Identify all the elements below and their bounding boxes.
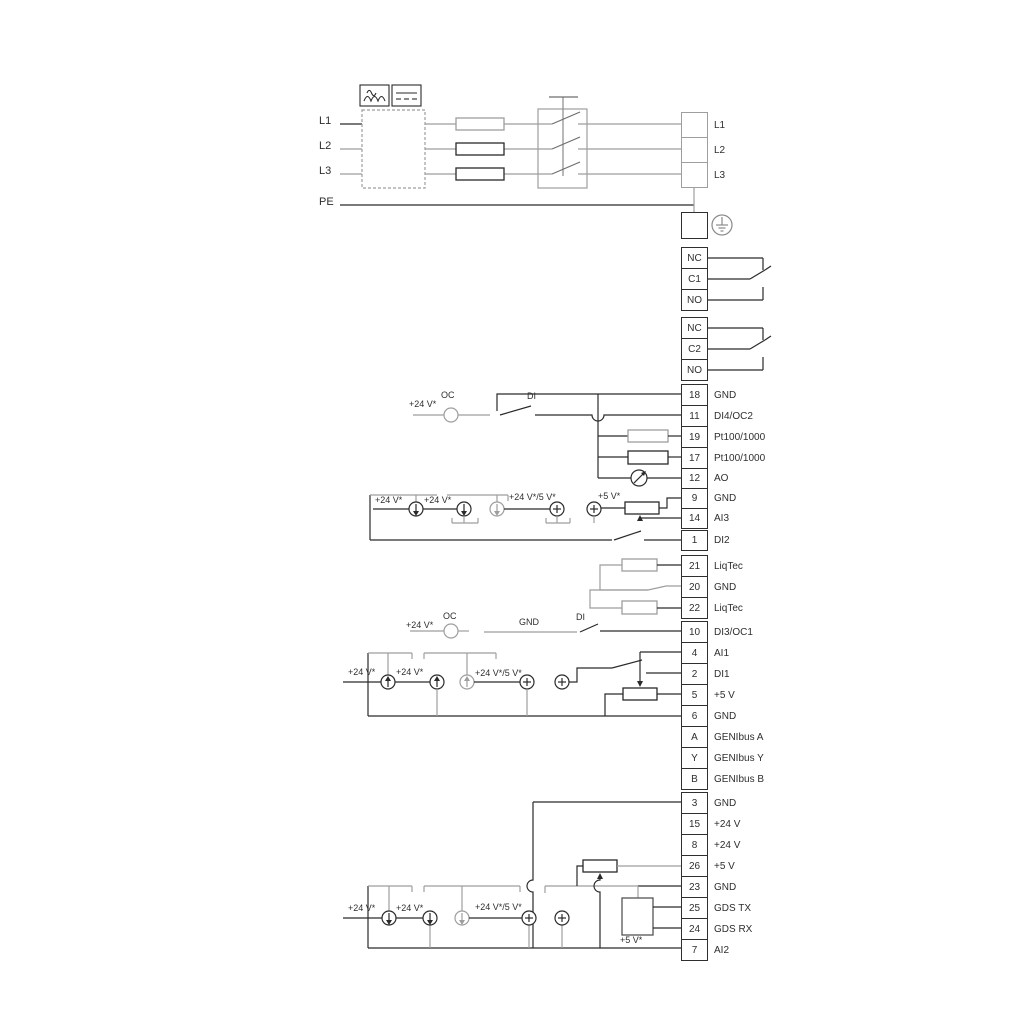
- pt100-resistor-icon: [628, 430, 668, 442]
- terminal-label-ai1: AI1: [714, 642, 729, 664]
- terminal-cell-14: 14: [681, 508, 708, 529]
- relay1-contact-icon: [708, 258, 771, 300]
- ai2-gds-circuit: [343, 802, 681, 948]
- power-input-wires: [340, 124, 694, 212]
- di-switch-icon: [500, 406, 531, 415]
- oc-label-di3: OC: [443, 611, 457, 621]
- potentiometer-icon: [583, 860, 617, 872]
- terminal-label-L1: L1: [714, 112, 725, 138]
- terminal-cell-23: 23: [681, 876, 708, 898]
- liqtec-circuit: [590, 559, 681, 614]
- terminal-label-5v: +5 V: [714, 684, 735, 706]
- terminal-cell-9: 9: [681, 488, 708, 509]
- di3-oc1-circuit: [410, 624, 681, 638]
- current-source-icon: [430, 675, 444, 689]
- di-switch-icon: [614, 531, 641, 540]
- terminal-label-genibus-y: GENIbus Y: [714, 747, 764, 769]
- input-label-l1: L1: [319, 115, 331, 127]
- relay2-contact-icon: [708, 328, 771, 370]
- terminal-label-genibus-b: GENIbus B: [714, 768, 764, 790]
- pe-terminal-box: [681, 212, 708, 239]
- terminal-label-liqtec-22: LiqTec: [714, 597, 743, 619]
- terminal-cell-4: 4: [681, 642, 708, 664]
- terminal-cell-8: 8: [681, 834, 708, 856]
- relay2-no-cell: NO: [681, 359, 708, 381]
- label-plus24v-di4: +24 V*: [409, 399, 436, 409]
- terminal-label-gnd-23: GND: [714, 876, 736, 898]
- relay1-no-cell: NO: [681, 289, 708, 311]
- voltage-source-icon: [555, 911, 569, 925]
- gds-sensor-box: [622, 898, 653, 935]
- terminal-label-L3: L3: [714, 162, 725, 188]
- current-source-icon: [381, 675, 395, 689]
- terminal-label-di3-oc1: DI3/OC1: [714, 621, 753, 643]
- terminal-cell-6: 6: [681, 705, 708, 727]
- relay2-nc-cell: NC: [681, 317, 708, 339]
- terminal-label-gnd-6: GND: [714, 705, 736, 727]
- terminal-label-ao: AO: [714, 468, 728, 489]
- terminal-cell-1: 1: [681, 530, 708, 551]
- terminal-cell-22: 22: [681, 597, 708, 619]
- terminal-label-L2: L2: [714, 137, 725, 163]
- terminal-cell-20: 20: [681, 576, 708, 598]
- terminal-cell-25: 25: [681, 897, 708, 919]
- label-plus5v-ai3: +5 V*: [598, 491, 620, 501]
- label-24v-5v-ai2: +24 V*/5 V*: [475, 902, 522, 912]
- label-plus24v-ai2-1: +24 V*: [348, 903, 375, 913]
- terminal-label-pt100-17: Pt100/1000: [714, 447, 765, 469]
- terminal-cell-15: 15: [681, 813, 708, 835]
- oc-label-di4: OC: [441, 390, 455, 400]
- terminal-cell-18: 18: [681, 384, 708, 406]
- terminal-label-gnd-9: GND: [714, 488, 736, 509]
- relay1-nc-cell: NC: [681, 247, 708, 269]
- terminal-cell-19: 19: [681, 426, 708, 448]
- voltage-source-icon: [555, 675, 569, 689]
- current-source-icon: [457, 502, 471, 516]
- current-source-icon: [409, 502, 423, 516]
- terminal-label-gnd-20: GND: [714, 576, 736, 598]
- ac-symbol-icon: [360, 85, 389, 106]
- terminal-cell-21: 21: [681, 555, 708, 577]
- terminal-label-gds-tx: GDS TX: [714, 897, 751, 919]
- label-plus24v-di3: +24 V*: [406, 620, 433, 630]
- input-label-pe: PE: [319, 196, 334, 208]
- ai1-circuit: [343, 652, 681, 716]
- label-plus24v-ai3-2: +24 V*: [424, 495, 451, 505]
- terminal-cell-24: 24: [681, 918, 708, 940]
- terminal-cell-2: 2: [681, 663, 708, 685]
- terminal-label-gnd-18: GND: [714, 384, 736, 406]
- terminal-cell-Y: Y: [681, 747, 708, 769]
- terminal-cell-3: 3: [681, 792, 708, 814]
- liqtec-resistor-icon: [622, 601, 657, 614]
- di-label-di3: DI: [576, 612, 585, 622]
- relay1-c1-cell: C1: [681, 268, 708, 290]
- label-24v-5v-ai1: +24 V*/5 V*: [475, 668, 522, 678]
- open-collector-icon: [444, 624, 458, 638]
- terminal-label-liqtec-21: LiqTec: [714, 555, 743, 577]
- wiring-diagram-page: L1 L2 L3 PE L1 L2 L3 NC C1 NO NC C2 NO 1…: [0, 0, 1024, 1024]
- input-label-l3: L3: [319, 165, 331, 177]
- terminal-cell-7: 7: [681, 939, 708, 961]
- input-label-l2: L2: [319, 140, 331, 152]
- dc-symbol-icon: [392, 85, 421, 106]
- label-24v-5v-ai3: +24 V*/5 V*: [509, 492, 556, 502]
- terminal-cell-A: A: [681, 726, 708, 748]
- terminal-label-ai3: AI3: [714, 508, 729, 529]
- voltage-source-icon: [587, 502, 601, 516]
- pt100-resistor-icon: [628, 451, 668, 464]
- di-switch-icon: [580, 624, 598, 632]
- label-plus24v-ai1-2: +24 V*: [396, 667, 423, 677]
- terminal-cell-5: 5: [681, 684, 708, 706]
- fuse-icon: [456, 118, 504, 180]
- terminal-label-24v-8: +24 V: [714, 834, 740, 856]
- terminal-label-5v-26: +5 V: [714, 855, 735, 877]
- voltage-source-icon: [550, 502, 564, 516]
- label-plus24v-ai3-1: +24 V*: [375, 495, 402, 505]
- terminal-label-ai2: AI2: [714, 939, 729, 961]
- analog-output-meter-icon: [631, 470, 647, 486]
- label-plus5v-ai2: +5 V*: [620, 935, 642, 945]
- current-source-icon: [423, 911, 437, 925]
- liqtec-resistor-icon: [622, 559, 657, 571]
- di-label-di4: DI: [527, 391, 536, 401]
- current-source-icon: [455, 911, 469, 925]
- terminal-label-genibus-a: GENIbus A: [714, 726, 763, 748]
- wiring-svg: [0, 0, 1024, 1024]
- earth-ground-icon: [712, 215, 732, 235]
- relay2-c2-cell: C2: [681, 338, 708, 360]
- terminal-cell-17: 17: [681, 447, 708, 469]
- label-plus24v-ai2-2: +24 V*: [396, 903, 423, 913]
- voltage-source-icon: [520, 675, 534, 689]
- di4-oc2-circuit: [413, 394, 681, 486]
- terminal-label-di1: DI1: [714, 663, 730, 685]
- terminal-cell-10: 10: [681, 621, 708, 643]
- potentiometer-icon: [623, 688, 657, 700]
- potentiometer-icon: [625, 502, 659, 514]
- terminal-cell-26: 26: [681, 855, 708, 877]
- terminal-label-gds-rx: GDS RX: [714, 918, 752, 940]
- terminal-label-gnd-3: GND: [714, 792, 736, 814]
- terminal-cell-L1: [681, 112, 708, 138]
- terminal-cell-11: 11: [681, 405, 708, 427]
- terminal-label-24v-15: +24 V: [714, 813, 740, 835]
- terminal-label-di4-oc2: DI4/OC2: [714, 405, 753, 427]
- di-switch-icon: [612, 660, 642, 668]
- label-plus24v-ai1-1: +24 V*: [348, 667, 375, 677]
- terminal-label-pt100-19: Pt100/1000: [714, 426, 765, 448]
- terminal-cell-L2: [681, 137, 708, 163]
- gnd-label-di3: GND: [519, 617, 539, 627]
- current-source-icon: [490, 502, 504, 516]
- current-source-icon: [460, 675, 474, 689]
- terminal-cell-B: B: [681, 768, 708, 790]
- terminal-cell-12: 12: [681, 468, 708, 489]
- voltage-source-icon: [522, 911, 536, 925]
- open-collector-icon: [444, 408, 458, 422]
- terminal-label-di2: DI2: [714, 530, 730, 551]
- current-source-icon: [382, 911, 396, 925]
- filter-box: [362, 110, 425, 188]
- terminal-cell-L3: [681, 162, 708, 188]
